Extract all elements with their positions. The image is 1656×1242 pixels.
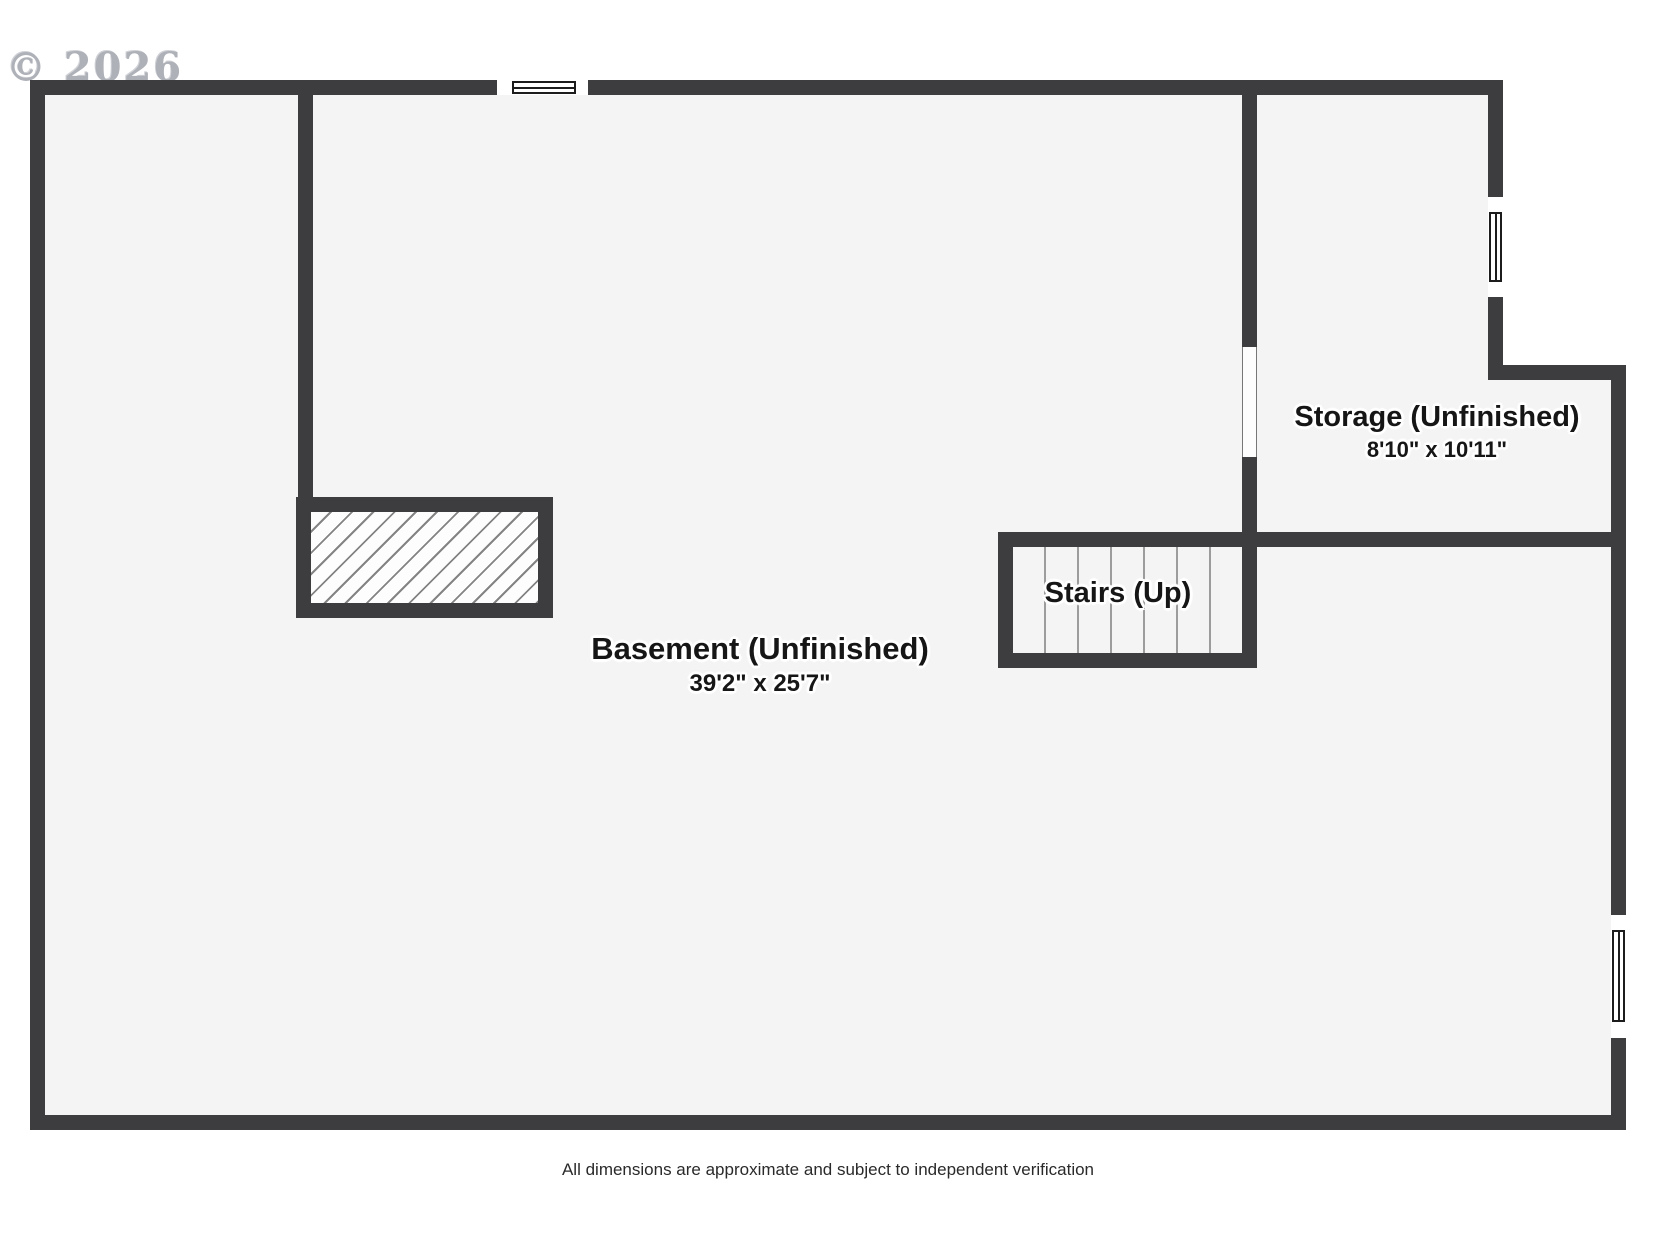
storage-label: Storage (Unfinished) 8'10" x 10'11"	[1247, 401, 1627, 463]
wall-top	[30, 80, 1503, 95]
stairs-label: Stairs (Up)	[1003, 577, 1233, 610]
wall-stairs-bottom	[998, 653, 1257, 668]
hatch-box-area	[311, 512, 538, 603]
wall-bottom	[30, 1115, 1626, 1130]
window-right-lower	[1611, 915, 1626, 1038]
window-pane	[1612, 930, 1625, 1022]
wall-storage-bottom	[998, 532, 1626, 547]
exterior-notch	[1503, 80, 1626, 365]
window-pane	[512, 81, 576, 94]
window-right-upper	[1488, 197, 1503, 297]
wall-stairs-right	[1242, 547, 1257, 668]
wall-left	[30, 80, 45, 1130]
wall-step	[1488, 365, 1626, 380]
window-top	[497, 80, 588, 95]
wall-interior-vertical	[298, 80, 313, 497]
basement-label: Basement (Unfinished) 39'2" x 25'7"	[530, 631, 990, 697]
basement-room-dimensions: 39'2" x 25'7"	[530, 670, 990, 698]
wall-storage-divider-upper	[1242, 80, 1257, 347]
storage-room-dimensions: 8'10" x 10'11"	[1247, 437, 1627, 462]
disclaimer-text: All dimensions are approximate and subje…	[0, 1160, 1656, 1180]
basement-room-name: Basement (Unfinished)	[530, 631, 990, 667]
floor-plan-page: © 2026 Basement (Unfinished) 39'2" x 25'…	[0, 0, 1656, 1242]
floor-area	[30, 80, 1626, 1130]
window-pane	[1489, 212, 1502, 282]
stairs-room-name: Stairs (Up)	[1003, 577, 1233, 610]
storage-room-name: Storage (Unfinished)	[1247, 401, 1627, 434]
